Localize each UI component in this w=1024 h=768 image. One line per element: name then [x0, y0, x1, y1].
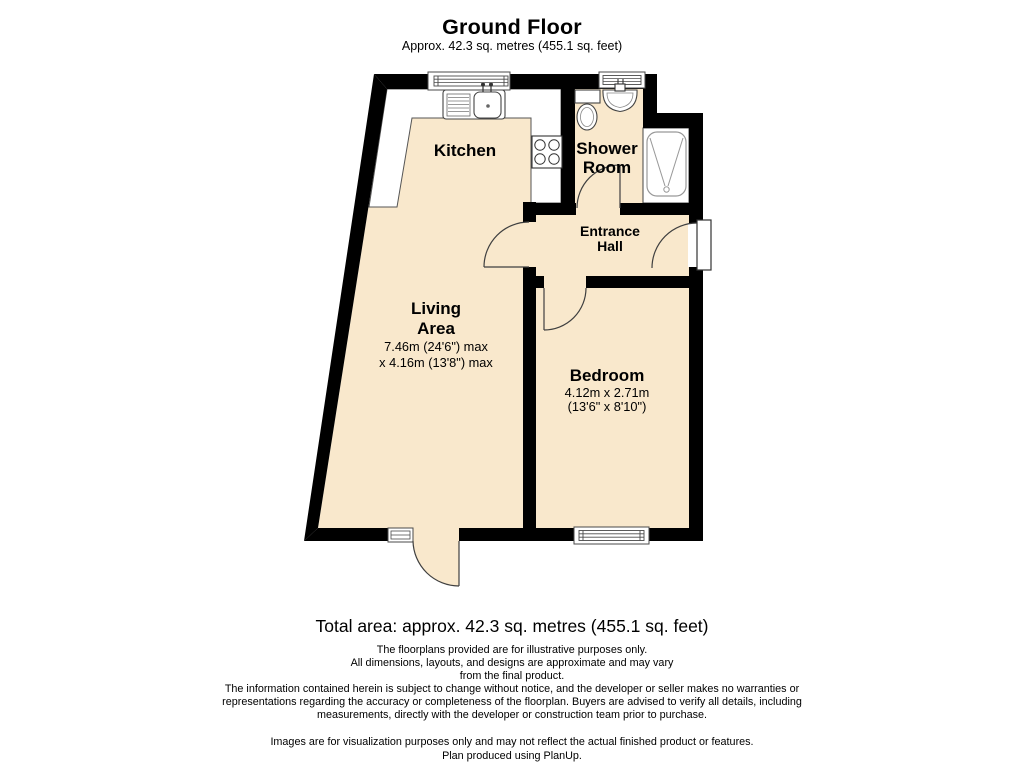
total-area-text: Total area: approx. 42.3 sq. metres (455…	[0, 616, 1024, 637]
wall-hall-living-upper	[523, 202, 536, 222]
patio-door-swing-floor	[413, 528, 459, 586]
disclaimer-block: The floorplans provided are for illustra…	[0, 644, 1024, 722]
wall-shower-bottom	[620, 203, 703, 215]
entrance-hall-label-line2: Hall	[597, 238, 623, 254]
bedroom-label: Bedroom	[570, 366, 645, 385]
living-area-label-line2: Area	[417, 319, 455, 338]
wall-kitchen-shower	[561, 88, 575, 215]
disclaimer-line: representations regarding the accuracy o…	[0, 696, 1024, 709]
disclaimer-line: The information contained herein is subj…	[0, 683, 1024, 696]
footer-notes: Images are for visualization purposes on…	[0, 736, 1024, 763]
wall-hall-bedroom-left	[523, 276, 544, 288]
disclaimer-line: measurements, directly with the develope…	[0, 709, 1024, 722]
footer-line-images: Images are for visualization purposes on…	[0, 736, 1024, 750]
kitchen-hob	[532, 136, 562, 168]
shower-room-label-line1: Shower	[576, 139, 638, 158]
footer-line-planup: Plan produced using PlanUp.	[0, 750, 1024, 764]
wall-living-bedroom	[523, 267, 536, 528]
disclaimer-line: The floorplans provided are for illustra…	[0, 644, 1024, 657]
bedroom-dimensions-line2: (13'6" x 8'10")	[568, 399, 647, 414]
disclaimer-line: All dimensions, layouts, and designs are…	[0, 657, 1024, 670]
living-area-dimensions-line1: 7.46m (24'6") max	[384, 339, 488, 354]
living-area-dimensions-line2: x 4.16m (13'8") max	[379, 355, 493, 370]
entrance-hall-label-line1: Entrance	[580, 223, 640, 239]
wall-hall-bedroom-right	[586, 276, 689, 288]
living-area-window	[388, 528, 413, 542]
bedroom-dimensions-line1: 4.12m x 2.71m	[565, 385, 650, 400]
floorplan-page: Ground Floor Approx. 42.3 sq. metres (45…	[0, 0, 1024, 768]
shower-tray	[647, 132, 686, 196]
living-area-label-line1: Living	[411, 299, 461, 318]
bedroom-window	[574, 527, 649, 544]
shower-room-label-line2: Room	[583, 158, 631, 177]
disclaimer-line: from the final product.	[0, 670, 1024, 683]
kitchen-label: Kitchen	[434, 141, 496, 160]
kitchen-window	[428, 72, 510, 90]
wall-right	[689, 113, 703, 541]
